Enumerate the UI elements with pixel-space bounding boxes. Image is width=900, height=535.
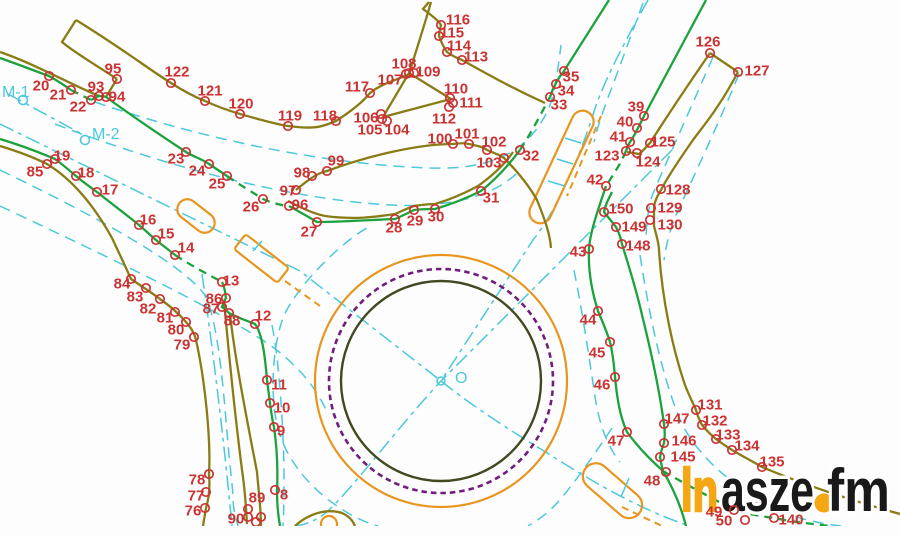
- svg-text:103: 103: [476, 155, 501, 172]
- svg-text:asze: asze: [721, 457, 814, 524]
- svg-text:47: 47: [608, 433, 625, 450]
- svg-text:30: 30: [428, 209, 445, 226]
- svg-text:12: 12: [255, 308, 272, 325]
- svg-text:134: 134: [734, 438, 760, 455]
- svg-text:85: 85: [27, 164, 44, 181]
- svg-text:9: 9: [277, 423, 285, 440]
- svg-text:24: 24: [189, 163, 206, 180]
- svg-text:130: 130: [657, 217, 682, 234]
- svg-text:99: 99: [328, 153, 345, 170]
- svg-text:107: 107: [377, 72, 402, 89]
- svg-text:105: 105: [357, 122, 382, 139]
- svg-text:48: 48: [644, 473, 661, 490]
- svg-text:44: 44: [580, 312, 597, 329]
- svg-text:76: 76: [185, 503, 202, 520]
- svg-text:146: 146: [671, 433, 696, 450]
- svg-text:121: 121: [197, 83, 222, 100]
- svg-text:26: 26: [243, 199, 260, 216]
- svg-text:100: 100: [427, 131, 452, 148]
- svg-text:123: 123: [594, 148, 619, 165]
- svg-text:M-1: M-1: [2, 84, 30, 101]
- svg-text:41: 41: [610, 129, 627, 146]
- svg-text:94: 94: [109, 89, 126, 106]
- svg-text:43: 43: [570, 244, 587, 261]
- svg-text:87: 87: [203, 301, 220, 318]
- svg-text:89: 89: [249, 490, 266, 507]
- svg-text:23: 23: [168, 151, 185, 168]
- svg-text:M-2: M-2: [92, 126, 120, 143]
- svg-text:119: 119: [278, 108, 302, 125]
- svg-text:117: 117: [345, 79, 369, 96]
- svg-text:17: 17: [102, 182, 119, 199]
- svg-text:14: 14: [178, 240, 195, 257]
- svg-text:120: 120: [228, 96, 253, 113]
- svg-text:122: 122: [164, 64, 189, 81]
- svg-text:13: 13: [223, 273, 240, 290]
- svg-text:131: 131: [697, 397, 722, 414]
- svg-text:109: 109: [415, 64, 440, 81]
- svg-text:28: 28: [386, 220, 403, 237]
- svg-text:147: 147: [664, 411, 689, 428]
- svg-text:8: 8: [280, 487, 288, 504]
- svg-text:15: 15: [158, 226, 175, 243]
- svg-text:150: 150: [608, 201, 633, 218]
- svg-text:25: 25: [209, 176, 226, 193]
- svg-text:33: 33: [551, 97, 568, 114]
- svg-text:102: 102: [481, 134, 506, 151]
- svg-text:118: 118: [313, 108, 337, 125]
- svg-text:124: 124: [635, 154, 661, 171]
- svg-text:19: 19: [54, 148, 71, 165]
- svg-text:148: 148: [625, 238, 650, 255]
- svg-text:98: 98: [294, 165, 311, 182]
- svg-text:31: 31: [483, 190, 500, 207]
- svg-text:111: 111: [459, 95, 482, 112]
- svg-text:149: 149: [621, 219, 646, 236]
- svg-text:O: O: [455, 370, 467, 387]
- svg-text:46: 46: [594, 377, 611, 394]
- svg-text:32: 32: [523, 148, 540, 165]
- svg-text:16: 16: [140, 212, 157, 229]
- svg-text:129: 129: [657, 200, 682, 217]
- svg-text:78: 78: [189, 472, 206, 489]
- svg-text:42: 42: [587, 172, 604, 189]
- svg-text:126: 126: [695, 34, 720, 51]
- svg-text:127: 127: [744, 63, 769, 80]
- svg-text:112: 112: [432, 111, 456, 128]
- svg-text:ln: ln: [681, 457, 718, 524]
- svg-text:82: 82: [140, 301, 157, 318]
- svg-text:90: 90: [228, 511, 245, 527]
- svg-text:88: 88: [224, 313, 241, 330]
- svg-text:21: 21: [50, 87, 67, 104]
- svg-text:fm: fm: [827, 457, 890, 524]
- svg-text:18: 18: [78, 165, 95, 182]
- svg-text:79: 79: [174, 337, 191, 354]
- svg-text:93: 93: [88, 79, 105, 96]
- svg-text:97: 97: [280, 183, 297, 200]
- svg-text:128: 128: [665, 182, 690, 199]
- svg-text:11: 11: [271, 377, 287, 394]
- svg-text:113: 113: [464, 49, 488, 66]
- svg-text:45: 45: [589, 345, 606, 362]
- svg-text:104: 104: [384, 122, 410, 139]
- svg-text:10: 10: [274, 400, 291, 417]
- svg-text:95: 95: [105, 61, 122, 78]
- svg-text:20: 20: [33, 78, 50, 95]
- svg-text:125: 125: [650, 134, 675, 151]
- svg-text:29: 29: [407, 213, 424, 230]
- svg-text:101: 101: [454, 126, 479, 143]
- svg-text:22: 22: [70, 99, 87, 116]
- svg-text:27: 27: [301, 224, 318, 241]
